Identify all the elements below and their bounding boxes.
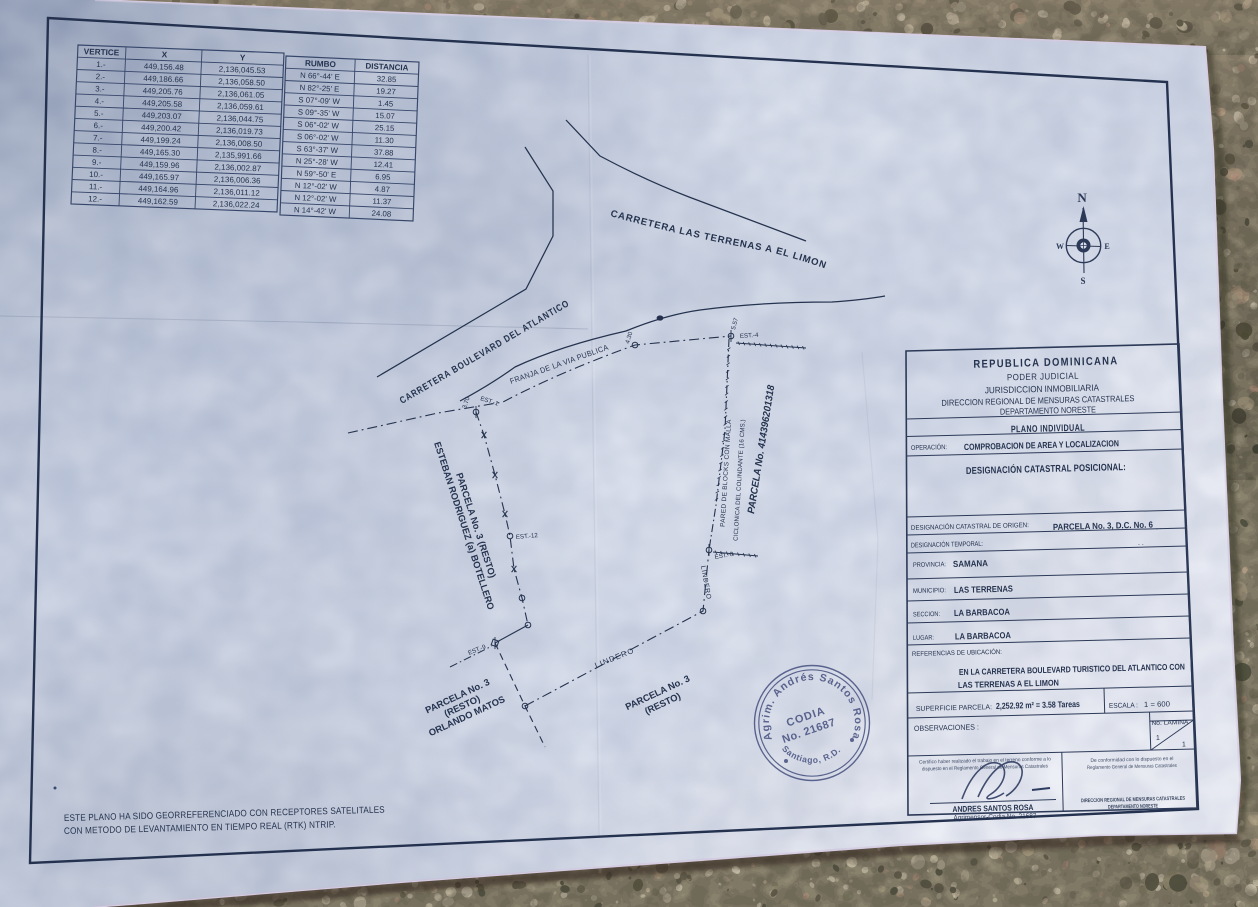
svg-text:2,252.92 m² = 3.58 Tareas: 2,252.92 m² = 3.58 Tareas bbox=[996, 699, 1080, 711]
svg-text:1: 1 bbox=[1182, 741, 1186, 748]
svg-text:4.-: 4.- bbox=[95, 97, 105, 106]
svg-text:7.-: 7.- bbox=[93, 133, 103, 142]
svg-text:2,136,044.75: 2,136,044.75 bbox=[216, 114, 264, 125]
svg-text:S 06°-02' W: S 06°-02' W bbox=[297, 132, 339, 143]
svg-text:2,136,008.50: 2,136,008.50 bbox=[215, 138, 263, 149]
svg-text:3.-: 3.- bbox=[95, 84, 105, 93]
svg-text:MUNICIPIO:: MUNICIPIO: bbox=[913, 587, 946, 595]
svg-text:N 66°-44' E: N 66°-44' E bbox=[300, 71, 340, 82]
svg-text:449,165.97: 449,165.97 bbox=[139, 172, 180, 183]
svg-text:N 12°-02' W: N 12°-02' W bbox=[295, 181, 338, 192]
svg-text:32.85: 32.85 bbox=[377, 74, 398, 84]
svg-text:X: X bbox=[161, 50, 167, 59]
svg-text:2,136,045.53: 2,136,045.53 bbox=[219, 65, 267, 76]
svg-text:37.88: 37.88 bbox=[374, 148, 394, 158]
svg-text:LUGAR:: LUGAR: bbox=[913, 634, 934, 642]
svg-text:15.07: 15.07 bbox=[375, 111, 395, 121]
svg-text:PODER JUDICIAL: PODER JUDICIAL bbox=[1007, 371, 1079, 383]
svg-text:2,136,006.36: 2,136,006.36 bbox=[214, 175, 262, 186]
svg-text:DEPARTAMENTO NORESTE: DEPARTAMENTO NORESTE bbox=[1108, 803, 1159, 810]
svg-text:11.37: 11.37 bbox=[372, 197, 391, 207]
svg-text:449,159.96: 449,159.96 bbox=[139, 160, 180, 171]
svg-text:6.-: 6.- bbox=[93, 121, 103, 130]
svg-text:449,200.42: 449,200.42 bbox=[141, 123, 182, 134]
svg-text:12.41: 12.41 bbox=[373, 160, 393, 170]
svg-text:2,136,019.73: 2,136,019.73 bbox=[216, 126, 264, 137]
svg-text:S: S bbox=[1080, 276, 1085, 286]
svg-text:25.15: 25.15 bbox=[375, 123, 396, 133]
svg-text:SECCION:: SECCION: bbox=[913, 611, 940, 619]
svg-text:2,136,061.05: 2,136,061.05 bbox=[217, 89, 265, 100]
svg-text:2,135,991.66: 2,135,991.66 bbox=[215, 150, 263, 161]
svg-text:LA BARBACOA: LA BARBACOA bbox=[955, 630, 1012, 641]
svg-text:449,203.07: 449,203.07 bbox=[142, 111, 183, 122]
svg-text:1: 1 bbox=[1156, 735, 1160, 742]
svg-text:5.-: 5.- bbox=[94, 109, 104, 118]
svg-text:8.-: 8.- bbox=[92, 146, 102, 155]
svg-text:2,136,058.50: 2,136,058.50 bbox=[218, 77, 266, 88]
svg-text:449,205.58: 449,205.58 bbox=[142, 98, 183, 109]
svg-text:12.-: 12.- bbox=[88, 194, 102, 204]
svg-text:N: N bbox=[1077, 190, 1087, 205]
svg-text:No. LAMINA: No. LAMINA bbox=[1151, 719, 1189, 727]
svg-text:6.95: 6.95 bbox=[375, 172, 391, 182]
svg-text:N 14°-42' W: N 14°-42' W bbox=[294, 205, 337, 216]
svg-text:1.45: 1.45 bbox=[378, 99, 394, 109]
svg-text:N 25°-28' W: N 25°-28' W bbox=[296, 156, 339, 167]
svg-text:449,199.24: 449,199.24 bbox=[140, 135, 181, 146]
svg-text:449,164.96: 449,164.96 bbox=[138, 184, 179, 195]
svg-text:EST.-4: EST.-4 bbox=[740, 332, 760, 340]
svg-text:, .: , . bbox=[1156, 524, 1162, 531]
svg-text:24.08: 24.08 bbox=[371, 209, 391, 219]
svg-text:N 59°-50' E: N 59°-50' E bbox=[296, 169, 336, 180]
svg-text:2,136,002.87: 2,136,002.87 bbox=[214, 163, 262, 174]
svg-text:PLANO INDIVIDUAL: PLANO INDIVIDUAL bbox=[1011, 423, 1085, 436]
svg-text:1.-: 1.- bbox=[96, 60, 106, 69]
svg-text:1 = 600: 1 = 600 bbox=[1144, 699, 1170, 709]
svg-text:N 12°-02' W: N 12°-02' W bbox=[294, 193, 337, 204]
svg-text:449,165.30: 449,165.30 bbox=[140, 147, 181, 158]
svg-text:S 06°-02' W: S 06°-02' W bbox=[297, 120, 339, 131]
svg-text:11.-: 11.- bbox=[89, 182, 103, 192]
svg-text:11.30: 11.30 bbox=[375, 135, 395, 145]
svg-text:W: W bbox=[1056, 242, 1064, 251]
svg-text:19.27: 19.27 bbox=[376, 86, 396, 96]
svg-text:PROVINCIA:: PROVINCIA: bbox=[913, 561, 946, 569]
svg-text:ESCALA :: ESCALA : bbox=[1109, 702, 1138, 710]
svg-text:449,186.66: 449,186.66 bbox=[143, 74, 184, 85]
svg-text:S 07°-09' W: S 07°-09' W bbox=[298, 95, 340, 106]
svg-text:SAMANA: SAMANA bbox=[953, 558, 989, 569]
svg-text:S 09°-35' W: S 09°-35' W bbox=[298, 107, 340, 118]
svg-text:LA BARBACOA: LA BARBACOA bbox=[954, 607, 1011, 618]
svg-text:RUMBO: RUMBO bbox=[305, 59, 337, 69]
svg-text:10.-: 10.- bbox=[89, 170, 103, 180]
svg-text:OBSERVACIONES :: OBSERVACIONES : bbox=[914, 722, 979, 733]
svg-text:2,136,022.24: 2,136,022.24 bbox=[213, 199, 261, 210]
svg-text:4.87: 4.87 bbox=[375, 184, 391, 194]
svg-text:N 82°-25' E: N 82°-25' E bbox=[299, 83, 339, 94]
svg-text:449,162.59: 449,162.59 bbox=[138, 196, 179, 207]
svg-text:449,205.76: 449,205.76 bbox=[143, 86, 184, 97]
svg-text:. .: . . bbox=[1138, 540, 1144, 547]
svg-text:Y: Y bbox=[240, 53, 246, 62]
svg-text:9.-: 9.- bbox=[92, 158, 102, 167]
svg-text:LAS TERRENAS: LAS TERRENAS bbox=[954, 584, 1013, 595]
svg-text:S 63°-37' W: S 63°-37' W bbox=[296, 144, 338, 155]
svg-text:2.-: 2.- bbox=[96, 72, 106, 81]
svg-text:VERTICE: VERTICE bbox=[84, 47, 120, 57]
svg-text:2,136,011.12: 2,136,011.12 bbox=[213, 187, 260, 198]
svg-text:E: E bbox=[1104, 242, 1109, 251]
svg-text:2,136,059.61: 2,136,059.61 bbox=[217, 101, 265, 112]
svg-text:449,156.48: 449,156.48 bbox=[144, 62, 185, 73]
